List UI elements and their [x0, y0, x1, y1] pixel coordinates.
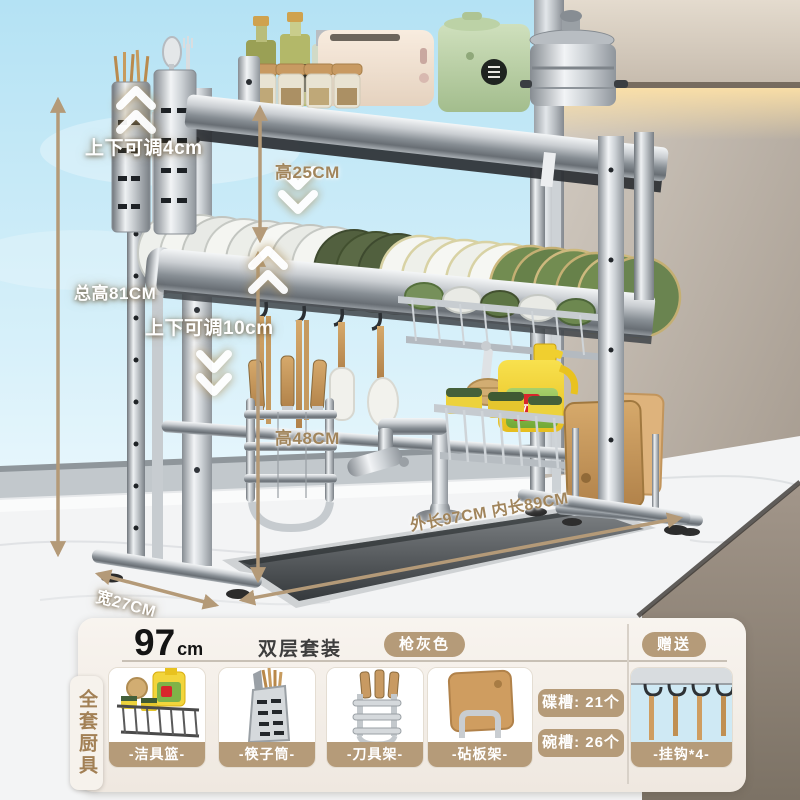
info-panel: 97cm 双层套装 枪灰色 赠送 [78, 618, 746, 792]
header-divider [122, 660, 727, 662]
annotation-tier-height: 高25CM [275, 158, 340, 183]
chopstick-holder-icon [219, 668, 315, 744]
item-label: -洁具篮- [109, 742, 205, 767]
gift-badge: 赠送 [642, 632, 706, 657]
side-tab-full-kitchen-set: 全套厨具 [70, 676, 103, 790]
hooks-icon [631, 668, 732, 744]
annotation-clearance-height: 高48CM [275, 424, 340, 449]
set-label: 双层套装 [258, 634, 342, 661]
size-number: 97 [134, 622, 175, 663]
cutting-board-rack-icon [428, 668, 532, 744]
size-label: 97cm [134, 622, 203, 664]
gift-section-divider [627, 624, 629, 784]
size-unit: cm [177, 639, 203, 659]
dish-slot-count-badge: 碟槽: 21个 [538, 689, 624, 717]
item-card-cleaning-basket: -洁具篮- [108, 667, 206, 768]
item-label: -刀具架- [327, 742, 423, 767]
item-label: -挂钩*4- [631, 742, 732, 767]
item-card-chopstick-holder: -筷子筒- [218, 667, 316, 768]
item-card-knife-rack: -刀具架- [326, 667, 424, 768]
item-label: -砧板架- [428, 742, 532, 767]
item-label: -筷子筒- [219, 742, 315, 767]
bowl-slot-count-badge: 碗槽: 26个 [538, 729, 624, 757]
annotation-total-height: 总高81CM [74, 279, 156, 304]
item-card-cutting-board-rack: -砧板架- [427, 667, 533, 768]
annotation-adjust-top: 上下可调4cm [85, 133, 203, 160]
color-badge: 枪灰色 [384, 632, 465, 657]
rice-cooker [438, 12, 530, 112]
cleaning-basket-icon [109, 668, 205, 744]
annotation-adjust-bottom: 上下可调10cm [145, 313, 274, 340]
product-promo-image: 立白 [0, 0, 800, 800]
knife-rack-icon [327, 668, 423, 744]
item-card-hooks: -挂钩*4- [630, 667, 733, 768]
